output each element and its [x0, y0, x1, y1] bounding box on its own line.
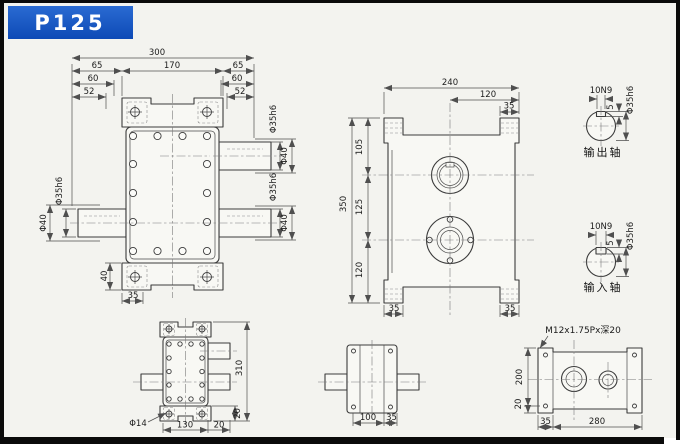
dim-foot-height: 40 — [100, 271, 110, 282]
dim-tab-bottom-left: 35 — [389, 304, 400, 314]
dim-shaft-dia-input: Φ35h6 — [626, 222, 636, 250]
dim-foot-hole-dia: Φ14 — [129, 419, 147, 429]
thread-spec-label: M12x1.75Px深20 — [545, 325, 621, 336]
input-shaft-caption: 输入轴 — [584, 280, 623, 294]
dim-seg-mid: 125 — [355, 199, 365, 215]
dim-shaft-dia-output: Φ35h6 — [626, 86, 636, 114]
dim-shaft-dia-left: Φ35h6 — [55, 177, 65, 205]
dim-hub-dia-left: Φ40 — [39, 214, 49, 232]
dim-keyway-output: 10N9 — [590, 86, 613, 96]
dim-plan-height: 310 — [235, 360, 245, 376]
model-title: P125 — [34, 11, 105, 35]
dim-width: 240 — [442, 78, 458, 88]
dim-shaft-dia-upper: Φ35h6 — [269, 105, 279, 133]
dim-plan-foot: 20 — [233, 408, 243, 419]
dim-base-height: 200 — [515, 369, 525, 385]
dim-body-length: 170 — [164, 61, 180, 71]
drawing-page: P125 — [0, 0, 680, 447]
dim-hub-dia-lower: Φ40 — [280, 214, 290, 232]
title-block: P125 — [8, 6, 133, 39]
dim-end-body: 100 — [360, 413, 376, 423]
dim-52-right: 52 — [235, 87, 246, 97]
dim-keyway-input: 10N9 — [590, 222, 613, 232]
dim-seg-bot: 120 — [355, 262, 365, 278]
dim-tab-top: 35 — [504, 102, 515, 112]
dim-60-right: 60 — [232, 74, 243, 84]
dim-base-offset: 35 — [540, 417, 551, 427]
output-shaft-caption: 输出轴 — [584, 145, 623, 159]
dim-hub-dia-upper: Φ40 — [280, 147, 290, 165]
dim-shaft-dia-lower: Φ35h6 — [269, 173, 279, 201]
dim-tab-bottom-right: 35 — [505, 304, 516, 314]
dim-height: 350 — [339, 196, 349, 212]
dim-foot-width: 35 — [128, 291, 139, 301]
dim-side-right: 65 — [233, 61, 244, 71]
dim-total-width: 300 — [149, 48, 165, 58]
dim-base-foot: 20 — [514, 399, 524, 410]
dim-keydepth-output: 5 — [606, 104, 616, 109]
dim-52-left: 52 — [84, 87, 95, 97]
dim-plan-shaft: 20 — [214, 421, 225, 431]
dim-side-left: 65 — [92, 61, 103, 71]
dim-end-flange: 35 — [386, 413, 397, 423]
dim-seg-top: 105 — [355, 139, 365, 155]
dim-base-span: 280 — [589, 417, 605, 427]
engineering-drawing: P125 — [0, 0, 680, 447]
dim-keydepth-input: 5 — [606, 240, 616, 245]
dim-plan-body: 130 — [177, 421, 193, 431]
dim-60-left: 60 — [88, 74, 99, 84]
dim-half-width: 120 — [480, 90, 496, 100]
